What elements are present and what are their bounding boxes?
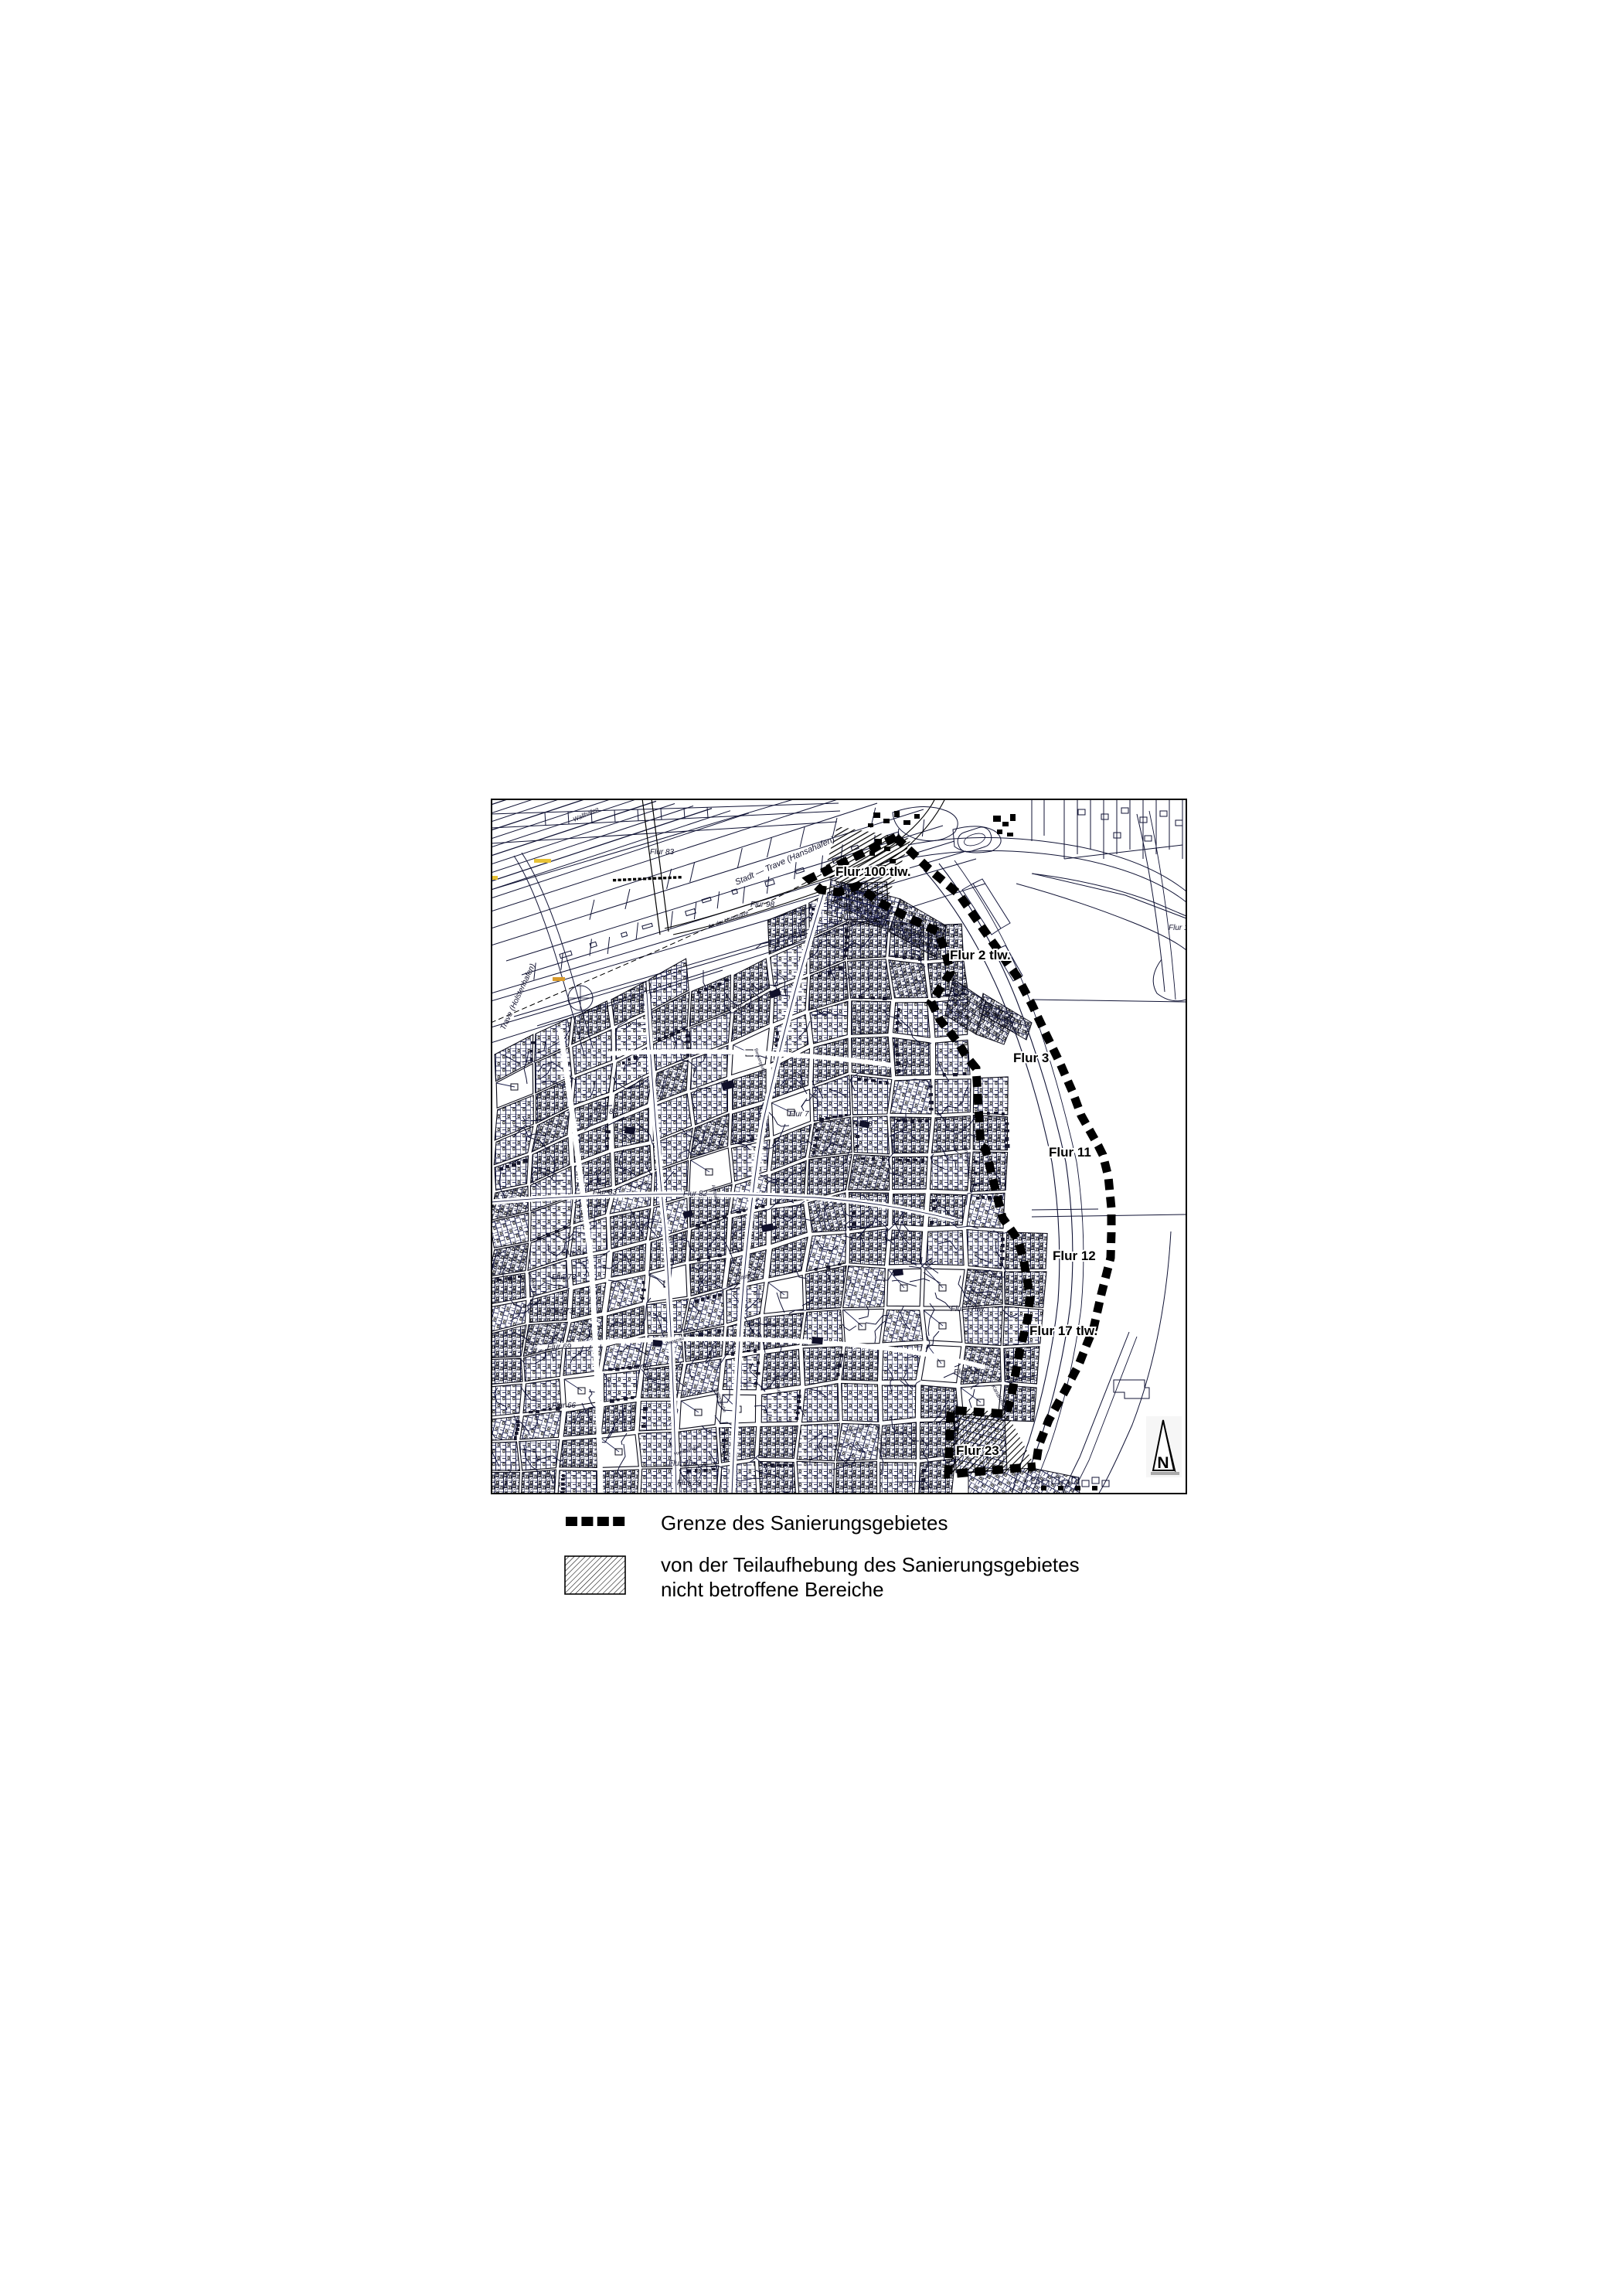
svg-text:Flur 78: Flur 78 [552,1273,577,1282]
svg-text:Flur 66: Flur 66 [552,1402,577,1410]
svg-text:Flur 12: Flur 12 [1053,1248,1096,1263]
svg-text:Flur 81: Flur 81 [561,1248,585,1257]
svg-text:Hartengrube: Hartengrube [713,1388,726,1414]
svg-text:Flur 82: Flur 82 [683,1190,708,1198]
svg-text:Flur 96: Flur 96 [729,1003,754,1011]
svg-text:Flur 100 tlw.: Flur 100 tlw. [835,864,911,879]
svg-text:Flur 68: Flur 68 [627,1363,652,1371]
svg-text:Flur 73: Flur 73 [550,1307,574,1316]
svg-text:N: N [1157,1454,1169,1472]
svg-text:Flur 8: Flur 8 [852,1120,873,1129]
svg-text:Flur 100: Flur 100 [829,918,857,927]
svg-text:Flur 1: Flur 1 [1169,924,1187,932]
svg-text:Flur 83: Flur 83 [593,1188,618,1197]
svg-text:Flur 7: Flur 7 [789,1110,809,1119]
svg-text:Flur 2 tlw.: Flur 2 tlw. [950,948,1011,962]
svg-text:Flur 3: Flur 3 [1013,1051,1049,1065]
svg-text:Flur 69: Flur 69 [547,1343,572,1351]
svg-text:Flur 17tlw.: Flur 17tlw. [951,1305,986,1313]
svg-text:Flur 27: Flur 27 [676,1389,701,1398]
svg-text:Flur 88: Flur 88 [594,1108,618,1116]
svg-text:Flur 83: Flur 83 [650,848,675,857]
svg-text:Flur 23: Flur 23 [956,1443,999,1458]
svg-text:Flur 98: Flur 98 [750,901,775,909]
svg-text:Flur 11: Flur 11 [1049,1145,1091,1160]
svg-text:Flur 17 tlw.: Flur 17 tlw. [1029,1323,1097,1338]
svg-text:Flur 17 I: Flur 17 I [954,1368,982,1377]
svg-text:Flur 26: Flur 26 [669,1460,693,1468]
svg-text:Stadt — Trave (Hansahafen): Stadt — Trave (Hansahafen) [733,835,836,887]
